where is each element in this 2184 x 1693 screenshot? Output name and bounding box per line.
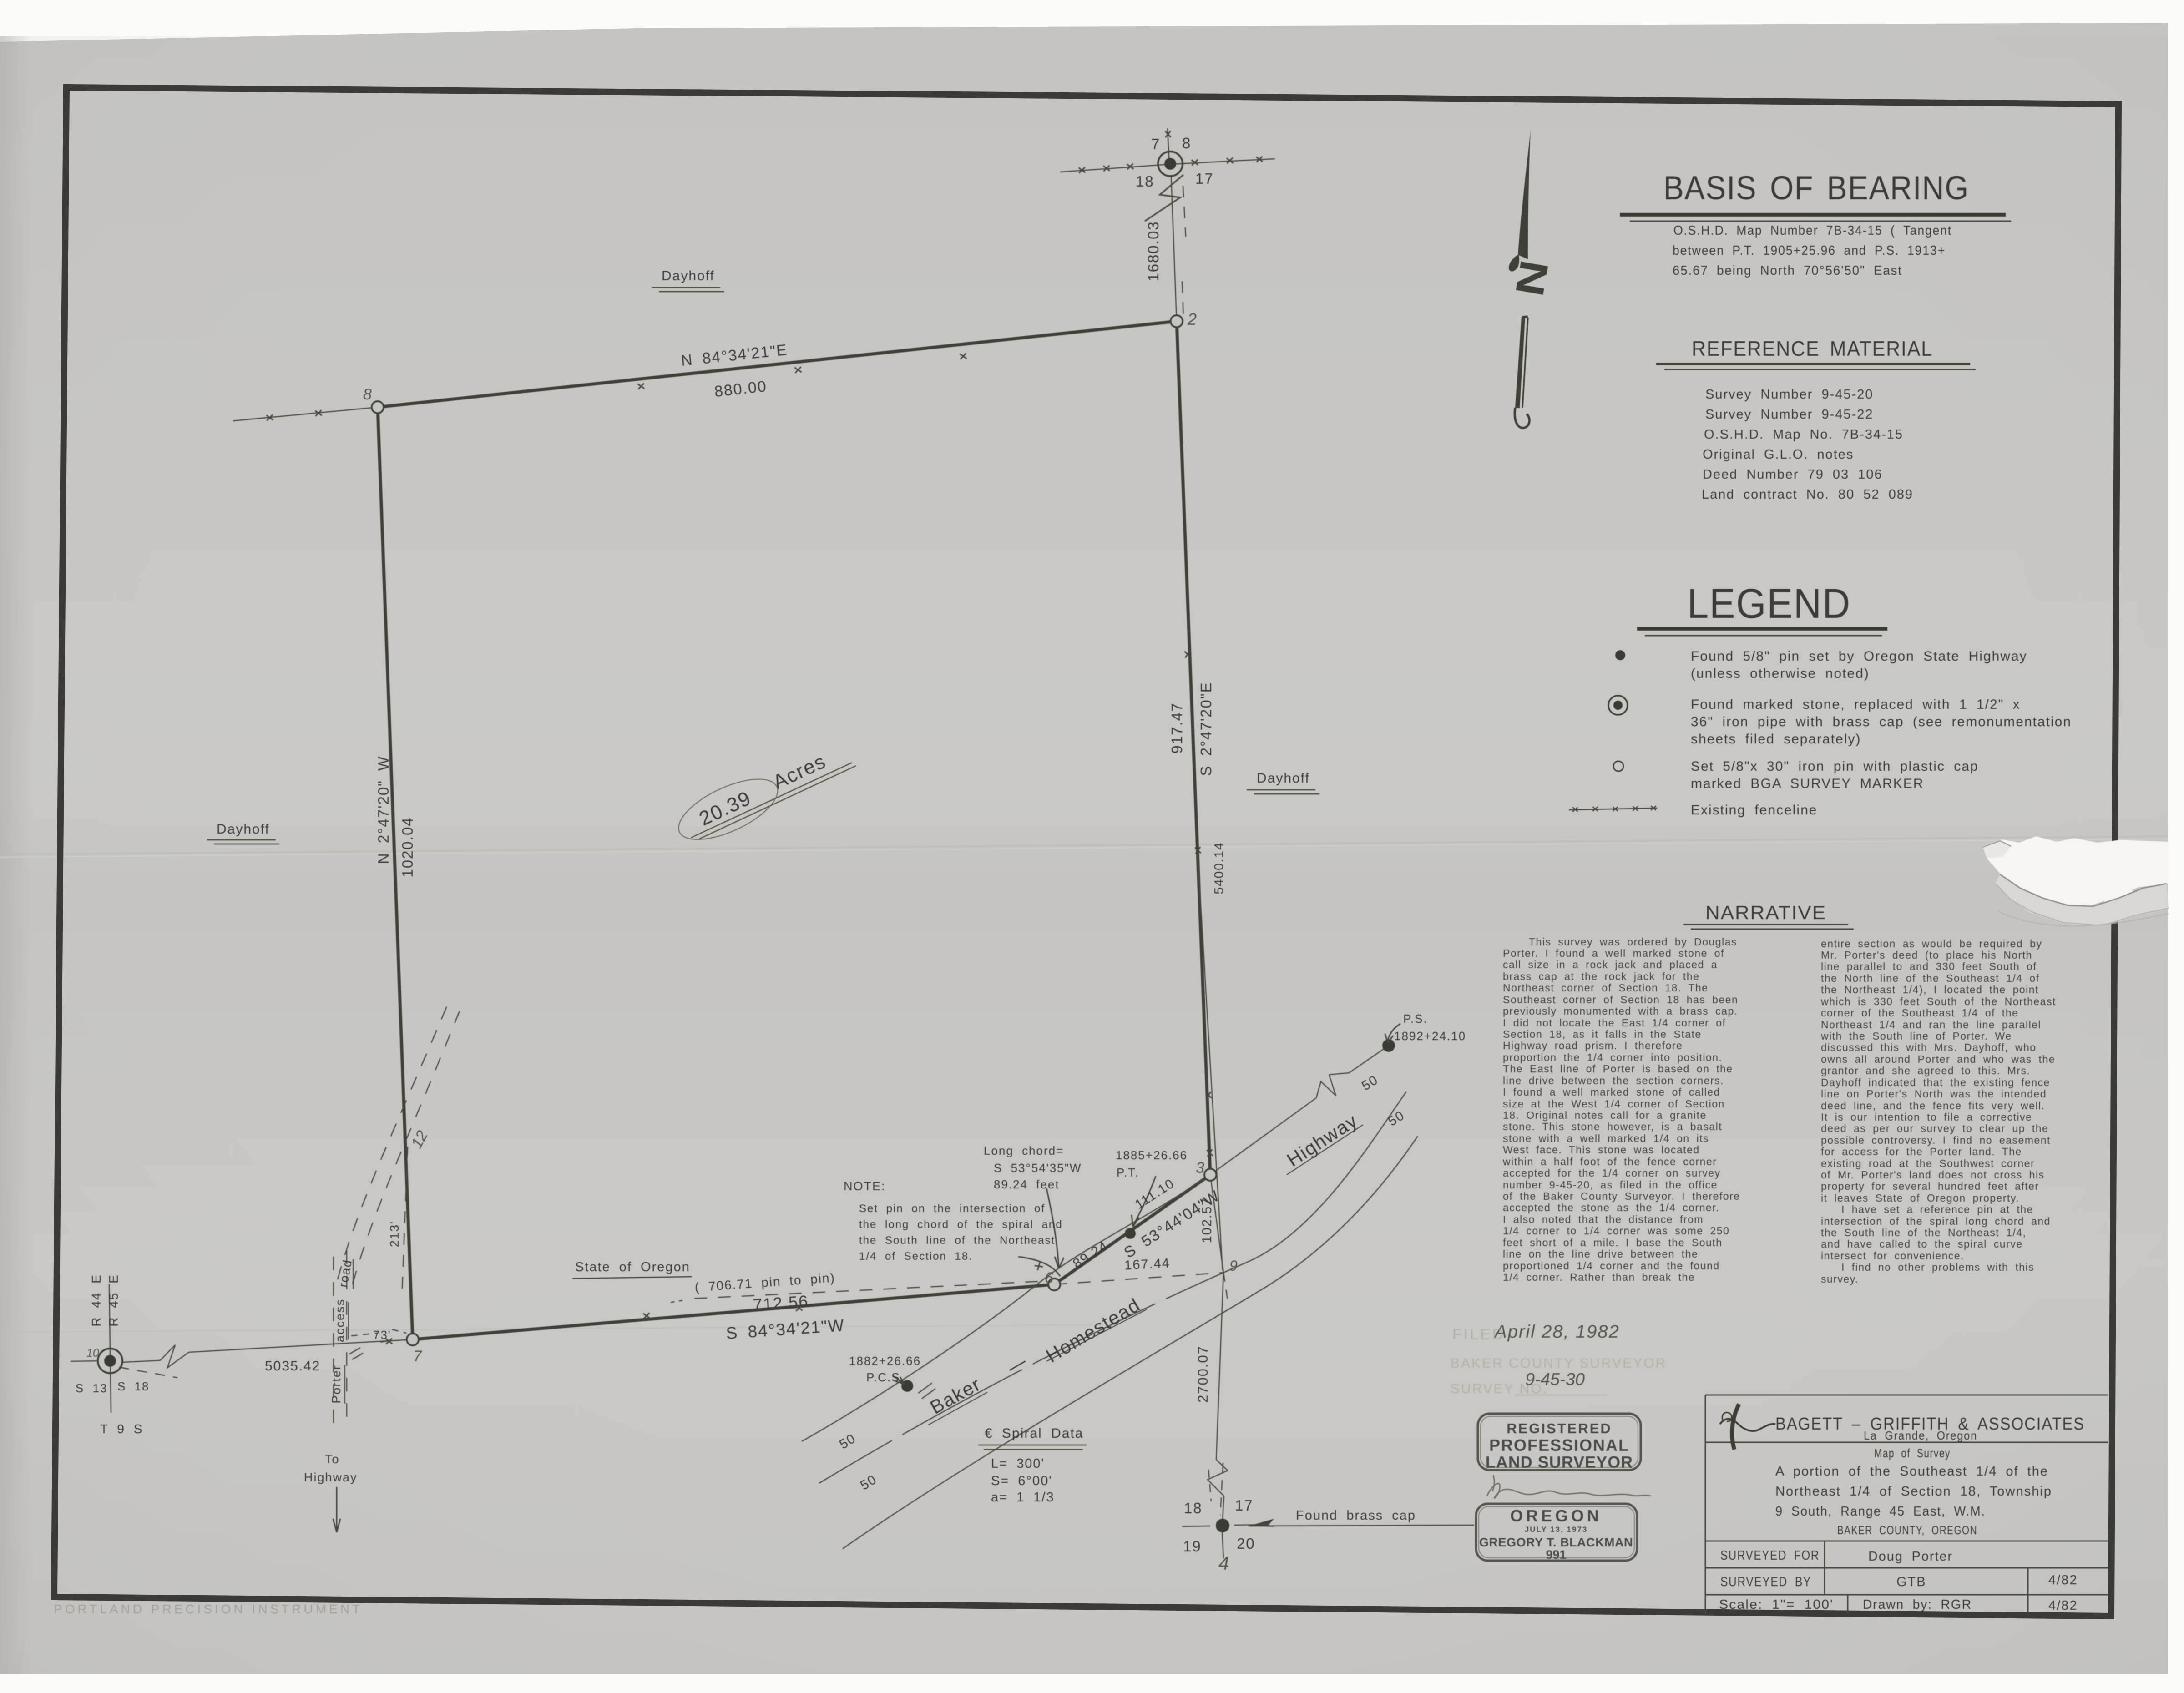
svg-text:N 2°47'20" W: N 2°47'20" W [375,756,392,864]
svg-text:corner of the Southeast 1/4 of: corner of the Southeast 1/4 of the [1821,1007,2018,1019]
svg-text:Long chord=: Long chord= [984,1144,1064,1157]
svg-text:9: 9 [1229,1258,1238,1274]
svg-text:line on Porter's North was the: line on Porter's North was the intended [1821,1088,2047,1100]
svg-text:owns all around Porter and who: owns all around Porter and who was the [1821,1053,2055,1065]
svg-text:This survey was ordered by Dou: This survey was ordered by Douglas [1529,936,1737,948]
svg-text:19: 19 [1183,1538,1202,1555]
svg-text:REGISTERED: REGISTERED [1507,1420,1612,1436]
svg-text:Porter. I found a well marked: Porter. I found a well marked stone of [1503,947,1724,959]
svg-text:and have called to the spiral: and have called to the spiral curve [1821,1238,2023,1250]
svg-text:S 53°54'35"W: S 53°54'35"W [994,1161,1082,1175]
svg-text:the North line of the Southeas: the North line of the Southeast 1/4 of [1821,972,2040,984]
svg-text:1892+24.10: 1892+24.10 [1394,1029,1466,1043]
svg-text:OREGON: OREGON [1510,1506,1602,1525]
svg-text:entire section as would be req: entire section as would be required by [1821,938,2042,950]
svg-text:2700.07: 2700.07 [1195,1345,1211,1403]
svg-text:a= 1 1/3: a= 1 1/3 [991,1490,1055,1505]
svg-text:L= 300': L= 300' [991,1456,1045,1471]
svg-text:PROFESSIONAL: PROFESSIONAL [1489,1436,1629,1455]
svg-text:Survey Number 9-45-20: Survey Number 9-45-20 [1705,387,1873,402]
svg-text:N: N [1507,257,1557,299]
svg-text:of the Baker County Surveyor.: of the Baker County Surveyor. I therefor… [1503,1190,1740,1202]
svg-text:Southeast corner of Section 18: Southeast corner of Section 18 has been [1503,994,1738,1006]
svg-text:line on the line drive between: line on the line drive between the [1503,1248,1698,1260]
svg-text:89.24 feet: 89.24 feet [994,1178,1060,1191]
svg-text:stone. This stone however, is: stone. This stone however, is a basalt [1503,1121,1722,1132]
svg-text:NOTE:: NOTE: [844,1179,886,1193]
svg-text:A portion of the Southeast 1/4: A portion of the Southeast 1/4 of the [1775,1464,2048,1479]
svg-text:73': 73' [373,1328,391,1342]
svg-text:P.T.: P.T. [1117,1166,1139,1179]
svg-text:(unless otherwise noted): (unless otherwise noted) [1691,666,1870,681]
svg-text:FILED: FILED [1452,1326,1505,1343]
svg-text:of Mr. Porter's land does not: of Mr. Porter's land does not cross his [1821,1169,2045,1181]
svg-text:167.44: 167.44 [1124,1256,1170,1273]
svg-text:Existing fenceline: Existing fenceline [1691,803,1817,818]
svg-text:feet short of a mile. I base: feet short of a mile. I base the South [1503,1237,1723,1248]
svg-text:T 9 S: T 9 S [100,1422,143,1436]
svg-text:it leaves State of Oregon prop: it leaves State of Oregon property. [1821,1192,2019,1204]
svg-text:Dayhoff: Dayhoff [1257,771,1310,786]
svg-text:proportioned 1/4 corner and th: proportioned 1/4 corner and the found [1503,1260,1720,1272]
svg-text:Found marked stone, replaced w: Found marked stone, replaced with 1 1/2"… [1691,697,2021,712]
svg-text:with the South line of Porter.: with the South line of Porter. We [1820,1030,2012,1042]
svg-text:1/4 of Section 18.: 1/4 of Section 18. [859,1250,973,1263]
svg-text:Dayhoff: Dayhoff [217,822,270,837]
svg-text:Dayhoff: Dayhoff [662,268,715,283]
svg-text:5035.42: 5035.42 [265,1359,320,1374]
svg-text:accepted for the 1/4 corner on: accepted for the 1/4 corner on survey [1503,1167,1721,1179]
svg-text:LAND SURVEYOR: LAND SURVEYOR [1486,1453,1633,1471]
svg-text:grantor and she agreed to this: grantor and she agreed to this. Mrs. [1821,1065,2030,1076]
svg-text:the long chord of the spiral a: the long chord of the spiral and [859,1218,1063,1231]
svg-text:SURVEYED BY: SURVEYED BY [1720,1575,1811,1589]
svg-text:R 44 E: R 44 E [89,1274,103,1327]
svg-text:I did not locate the East 1/4: I did not locate the East 1/4 corner of [1503,1017,1726,1029]
svg-text:intersection of the spiral lon: intersection of the spiral long chord an… [1821,1215,2051,1227]
svg-text:SURVEYED FOR: SURVEYED FOR [1720,1548,1820,1563]
svg-text:Found 5/8" pin set by Oregon S: Found 5/8" pin set by Oregon State Highw… [1691,649,2027,664]
svg-text:the South line of the Northeas: the South line of the Northeast 1/4, [1821,1227,2026,1238]
svg-text:213': 213' [388,1221,401,1247]
svg-text:2: 2 [1187,310,1197,328]
svg-text:the Northeast 1/4), I located: the Northeast 1/4), I located the point [1821,984,2039,996]
svg-text:which is 330 feet South of the: which is 330 feet South of the Northeast [1820,996,2056,1007]
svg-text:The East line of Porter is bas: The East line of Porter is based on the [1503,1063,1733,1075]
svg-text:It is our intention to file a: It is our intention to file a corrective [1821,1111,2032,1123]
svg-text:existing road at the Southwest: existing road at the Southwest corner [1821,1157,2035,1169]
svg-text:S= 6°00': S= 6°00' [991,1474,1052,1488]
svg-text:marked BGA SURVEY MARKER: marked BGA SURVEY MARKER [1691,776,1924,791]
svg-text:Scale: 1"= 100': Scale: 1"= 100' [1719,1597,1834,1612]
svg-text:1/4 corner to 1/4 corner was s: 1/4 corner to 1/4 corner was some 250 [1503,1225,1729,1237]
svg-text:between P.T. 1905+25.96 and P.: between P.T. 1905+25.96 and P.S. 1913+ [1673,243,1946,258]
svg-text:Northeast 1/4 and ran the line: Northeast 1/4 and ran the line parallel [1821,1019,2041,1031]
svg-text:survey.: survey. [1821,1273,1859,1285]
svg-text:17: 17 [1195,170,1214,187]
svg-text:Set 5/8"x 30" iron pin with pl: Set 5/8"x 30" iron pin with plastic cap [1691,759,1979,774]
svg-text:Deed Number 79 03 106: Deed Number 79 03 106 [1703,467,1883,482]
svg-text:Survey Number 9-45-22: Survey Number 9-45-22 [1705,407,1873,422]
svg-text:712.56: 712.56 [753,1292,809,1314]
svg-text:Set pin on the intersection of: Set pin on the intersection of [859,1203,1045,1215]
svg-text:To: To [325,1452,340,1466]
svg-text:possible controversy. I find: possible controversy. I find no easement [1821,1134,2051,1146]
svg-text:I have set a reference pin at: I have set a reference pin at the [1841,1203,2033,1215]
svg-text:stone with a well marked 1/4 o: stone with a well marked 1/4 on its [1503,1132,1709,1144]
svg-text:1885+26.66: 1885+26.66 [1116,1148,1188,1162]
svg-text:1680.03: 1680.03 [1145,221,1162,281]
svg-text:State of Oregon: State of Oregon [575,1260,690,1274]
svg-text:€ Spiral Data: € Spiral Data [985,1426,1083,1441]
svg-text:17: 17 [1235,1497,1254,1514]
svg-text:NARRATIVE: NARRATIVE [1705,902,1826,923]
svg-text:GTB: GTB [1896,1575,1926,1589]
svg-text:4: 4 [1218,1552,1229,1574]
svg-text:discussed this with Mrs. Dayho: discussed this with Mrs. Dayhoff, who [1821,1041,2037,1053]
svg-text:proportion the 1/4 corner into: proportion the 1/4 corner into position. [1503,1051,1722,1063]
svg-text:number 9-45-20, as filed in th: number 9-45-20, as filed in the office [1503,1179,1718,1191]
svg-text:brass cap at the rock jack for: brass cap at the rock jack for the [1503,970,1699,982]
svg-text:Found brass cap: Found brass cap [1296,1508,1416,1523]
svg-text:Porter: Porter [329,1365,343,1404]
svg-text:BAKER COUNTY SURVEYOR: BAKER COUNTY SURVEYOR [1451,1356,1667,1371]
svg-text:4/82: 4/82 [2048,1598,2078,1613]
svg-text:line drive between the section: line drive between the section corners. [1503,1075,1724,1087]
svg-text:deed as per our survey to clea: deed as per our survey to clear up the [1821,1122,2048,1134]
svg-text:Highway: Highway [304,1471,358,1484]
svg-text:Highway road prism. I therefo: Highway road prism. I therefore [1503,1040,1683,1051]
svg-text:Dayhoff indicated that the exi: Dayhoff indicated that the existing fenc… [1821,1076,2050,1088]
svg-text:access: access [333,1299,347,1342]
svg-text:Doug Porter: Doug Porter [1868,1549,1953,1564]
svg-text:20: 20 [1237,1535,1255,1552]
svg-text:JULY 13, 1973: JULY 13, 1973 [1525,1525,1587,1534]
svg-text:O.S.H.D. Map No. 7B-34-15: O.S.H.D. Map No. 7B-34-15 [1704,427,1903,442]
svg-text:PORTLAND PRECISION INSTRUMENT: PORTLAND PRECISION INSTRUMENT [54,1602,363,1616]
svg-text:I also noted that the distance: I also noted that the distance from [1503,1213,1704,1225]
svg-text:S 2°47'20"E: S 2°47'20"E [1198,682,1214,776]
svg-text:intersect for convenience.: intersect for convenience. [1821,1250,1964,1262]
svg-text:Original G.L.O. notes: Original G.L.O. notes [1703,447,1854,462]
svg-text:Map of Survey: Map of Survey [1874,1446,1951,1460]
svg-text:I found a well marked stone of: I found a well marked stone of called [1503,1086,1720,1098]
svg-text:Section 18, as it falls in the: Section 18, as it falls in the State [1503,1028,1702,1040]
svg-text:1/4 corner. Rather than break: 1/4 corner. Rather than break the [1503,1271,1695,1283]
svg-text:S 18: S 18 [117,1380,150,1393]
svg-text:La Grande, Oregon: La Grande, Oregon [1864,1429,1977,1442]
svg-text:size at the West 1/4 corner of: size at the West 1/4 corner of Section [1503,1098,1725,1110]
svg-text:deed line, and the fence fits: deed line, and the fence fits very well. [1821,1100,2045,1112]
svg-text:4/82: 4/82 [2048,1573,2078,1587]
svg-text:991: 991 [1546,1548,1566,1562]
svg-text:1882+26.66: 1882+26.66 [849,1354,921,1368]
svg-text:REFERENCE MATERIAL: REFERENCE MATERIAL [1692,337,1933,360]
svg-text:9 South, Range 45 East, W.M.: 9 South, Range 45 East, W.M. [1775,1504,1986,1519]
svg-text:April 28, 1982: April 28, 1982 [1494,1322,1620,1342]
svg-text:LEGEND: LEGEND [1687,581,1851,627]
svg-text:previously monumented with a b: previously monumented with a brass cap. [1503,1005,1738,1017]
svg-text:S 13: S 13 [76,1381,108,1395]
svg-text:10: 10 [86,1347,99,1359]
svg-text:Mr. Porter's deed (to place hi: Mr. Porter's deed (to place his North [1821,949,2032,961]
svg-text:the South line of the Northeas: the South line of the Northeast [859,1234,1055,1247]
svg-text:BAKER COUNTY, OREGON: BAKER COUNTY, OREGON [1837,1523,1977,1537]
svg-text:9-45-30: 9-45-30 [1525,1370,1585,1389]
svg-text:call size in a rock jack and p: call size in a rock jack and placed a [1503,959,1718,970]
svg-text:property for several hundred f: property for several hundred feet after [1821,1180,2039,1192]
svg-text:I find no other problems with: I find no other problems with this [1841,1261,2034,1273]
svg-text:within a half foot of the fenc: within a half foot of the fence corner [1502,1156,1717,1167]
svg-text:65.67 being North 70°56'50" Ea: 65.67 being North 70°56'50" East [1673,263,1902,278]
svg-text:GREGORY T. BLACKMAN: GREGORY T. BLACKMAN [1479,1536,1633,1549]
svg-text:8: 8 [1182,135,1191,152]
svg-text:6: 6 [1045,1269,1053,1287]
svg-text:for access for the Porter land: for access for the Porter land. The [1821,1146,2022,1157]
svg-text:3: 3 [1196,1159,1204,1177]
svg-text:sheets filed separately): sheets filed separately) [1691,732,1861,747]
svg-text:Northeast corner of Section 18: Northeast corner of Section 18. The [1503,982,1708,994]
svg-text:accepted the stone as the 1/4: accepted the stone as the 1/4 corner. [1503,1202,1719,1213]
svg-text:Land contract No. 80 52 089: Land contract No. 80 52 089 [1702,487,1913,502]
svg-text:BASIS OF BEARING: BASIS OF BEARING [1663,170,1969,207]
svg-text:7: 7 [413,1348,422,1365]
svg-text:P.S.: P.S. [1403,1012,1428,1026]
svg-text:8: 8 [363,386,372,403]
svg-text:18. Original notes call for a: 18. Original notes call for a granite [1503,1109,1707,1121]
svg-text:Northeast 1/4 of Section 18, T: Northeast 1/4 of Section 18, Township [1775,1484,2052,1499]
svg-text:917.47: 917.47 [1168,702,1185,754]
svg-text:1020.04: 1020.04 [399,817,416,877]
svg-text:line parallel to and 330 feet: line parallel to and 330 feet South of [1821,960,2037,972]
svg-text:36" iron pipe with brass cap (: 36" iron pipe with brass cap (see remonu… [1691,714,2072,729]
svg-text:West face. This stone was loc: West face. This stone was located [1503,1144,1700,1156]
svg-text:18: 18 [1136,173,1154,190]
svg-text:102.57: 102.57 [1200,1198,1214,1243]
svg-text:Drawn by: RGR: Drawn by: RGR [1863,1597,1972,1612]
svg-text:18: 18 [1184,1500,1203,1516]
svg-text:5400.14: 5400.14 [1212,842,1226,894]
svg-text:R 45 E: R 45 E [106,1274,121,1327]
svg-text:7: 7 [1151,136,1160,152]
svg-text:P.C.S.: P.C.S. [866,1370,905,1384]
svg-text:O.S.H.D. Map Number 7B-34-15 (: O.S.H.D. Map Number 7B-34-15 ( Tangent [1673,223,1952,238]
